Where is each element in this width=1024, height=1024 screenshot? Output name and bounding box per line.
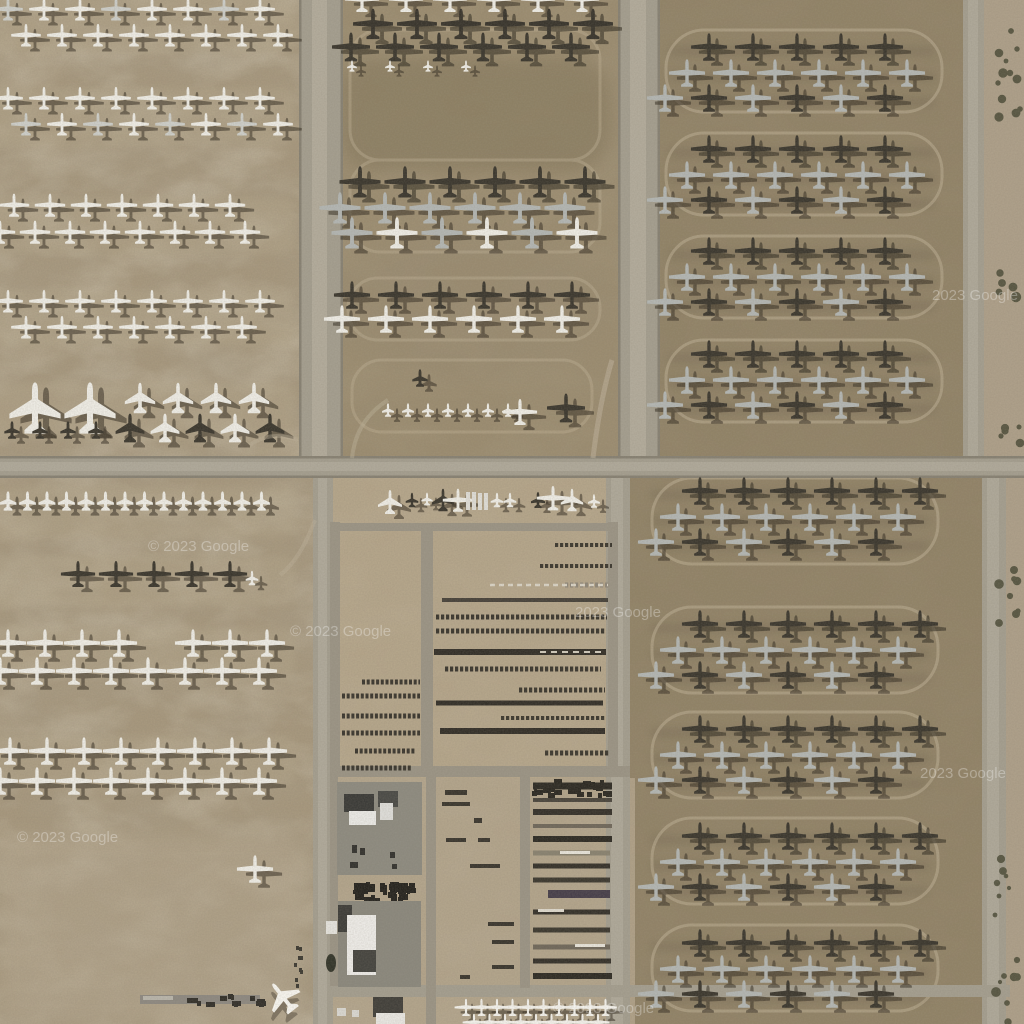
svg-text:© 2023 Google: © 2023 Google <box>553 1000 654 1017</box>
svg-text:© 2023 Google: © 2023 Google <box>290 623 391 640</box>
svg-text:© 2023 Google: © 2023 Google <box>17 829 118 846</box>
svg-text:© 2023 Google: © 2023 Google <box>148 538 249 555</box>
svg-text:2023 Google: 2023 Google <box>932 287 1018 304</box>
svg-text:2023 Google: 2023 Google <box>575 604 661 621</box>
svg-text:2023 Google: 2023 Google <box>920 765 1006 782</box>
